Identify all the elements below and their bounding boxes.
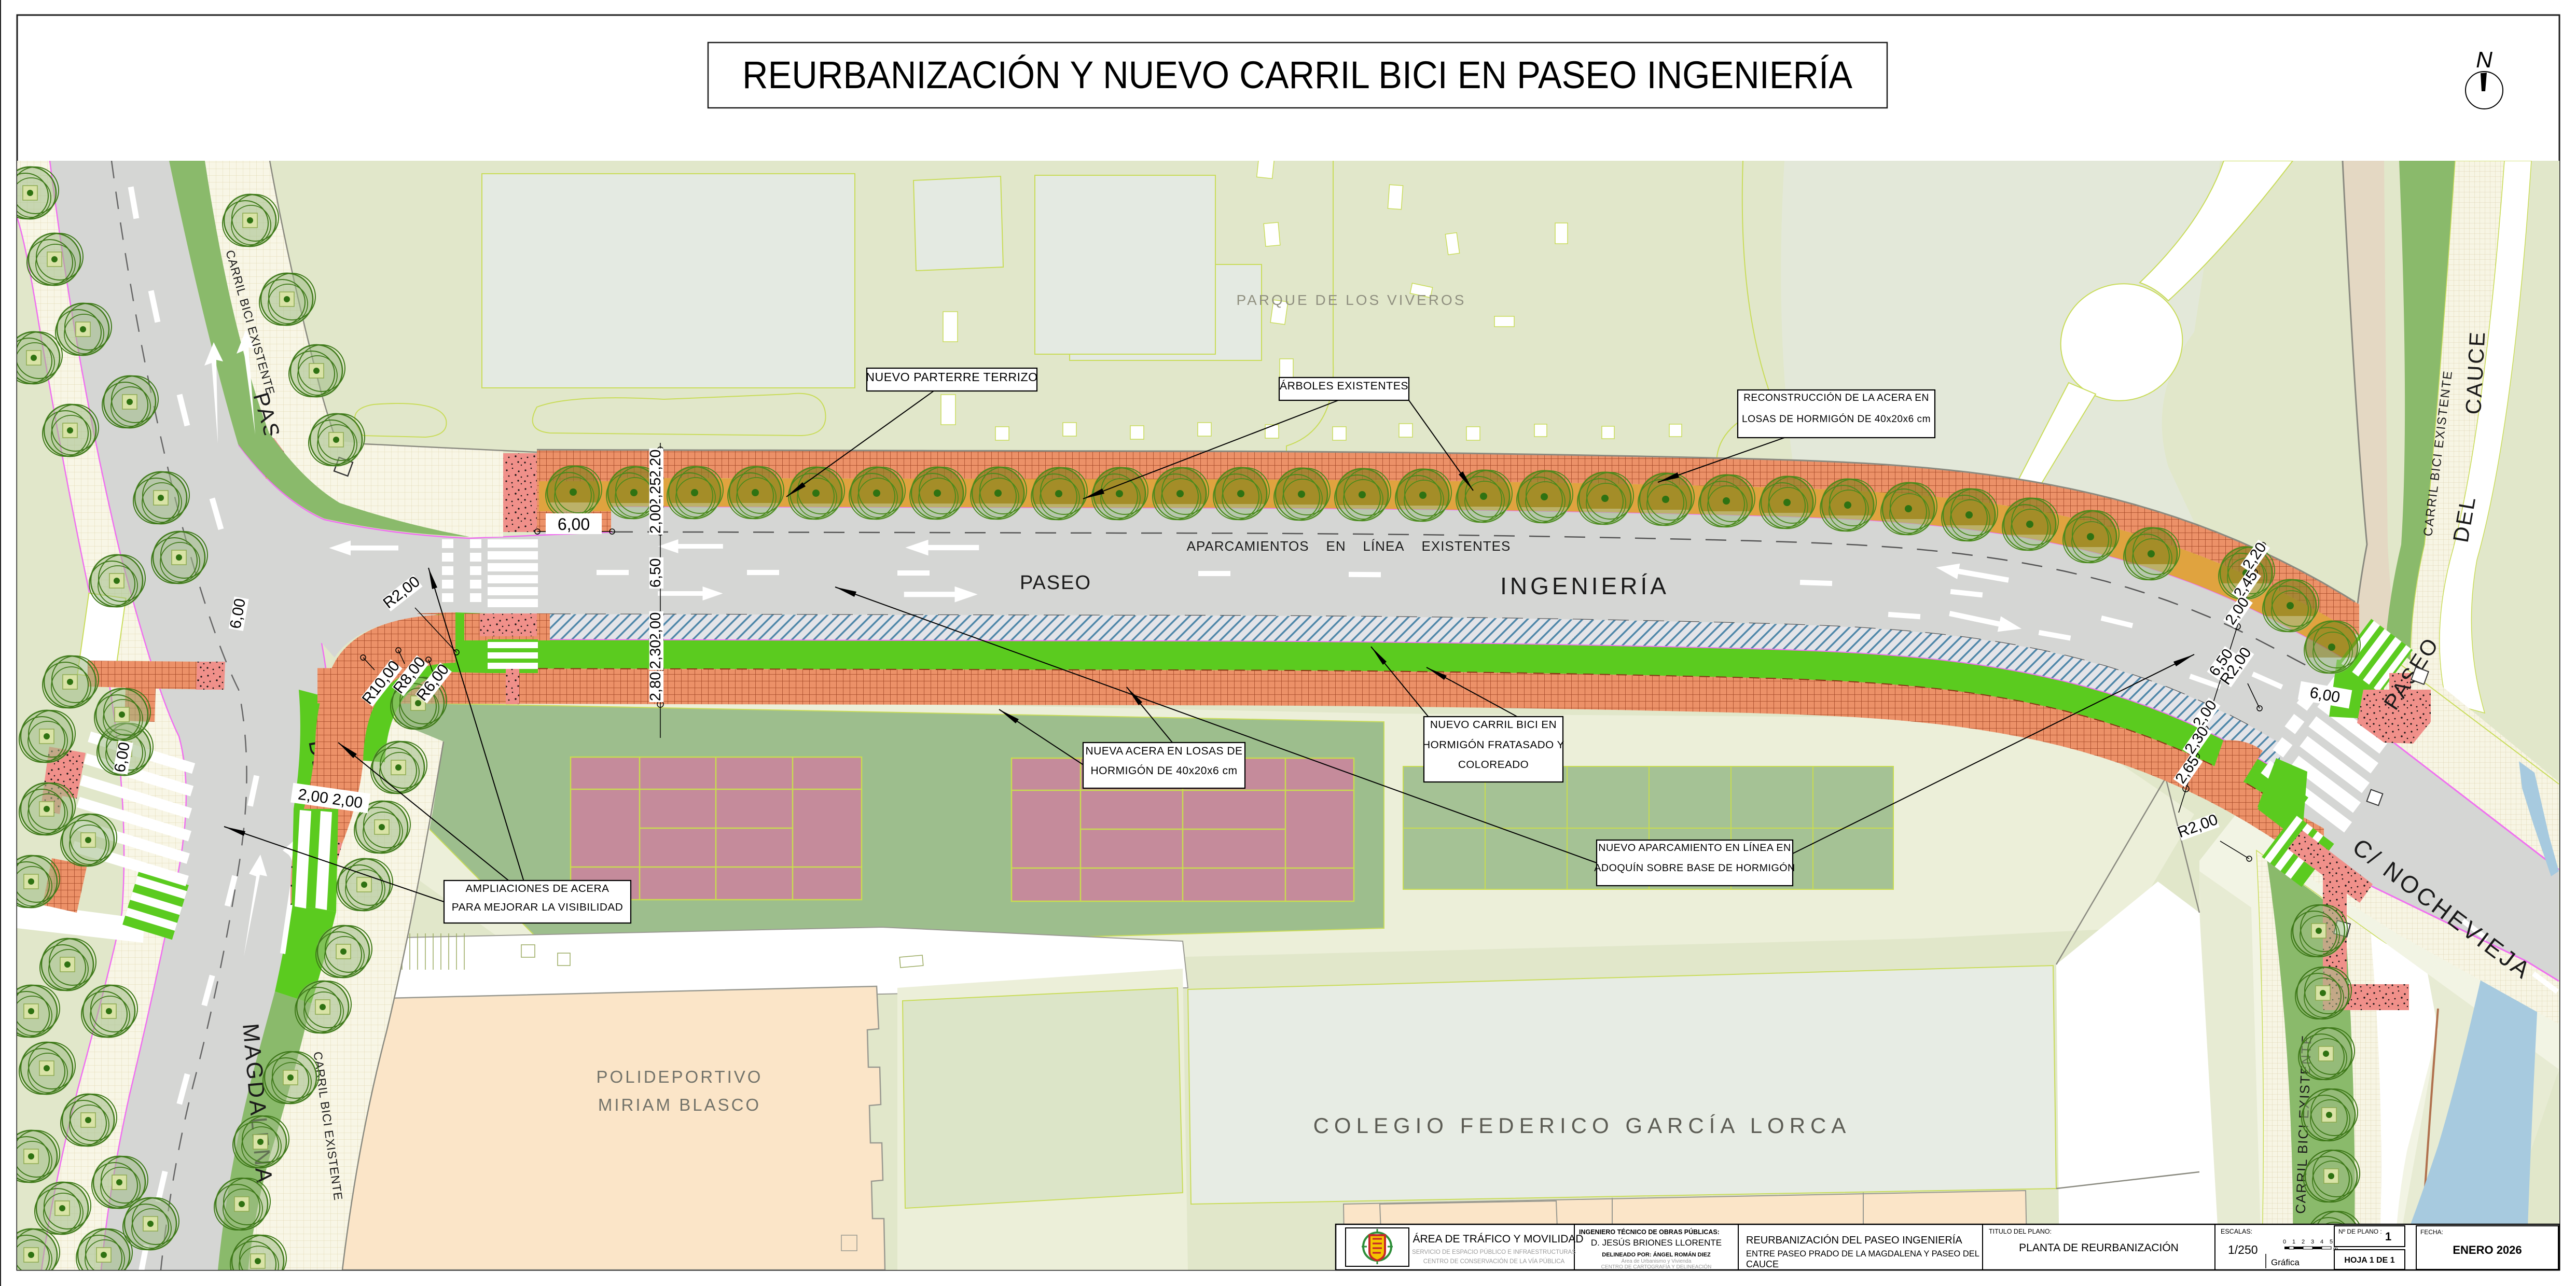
svg-text:FECHA:: FECHA: bbox=[2420, 1228, 2443, 1236]
svg-text:ENTRE PASEO PRADO DE LA MAGDAL: ENTRE PASEO PRADO DE LA MAGDALENA Y PASE… bbox=[1746, 1249, 1979, 1259]
svg-text:SERVICIO DE ESPACIO PÚBLICO E: SERVICIO DE ESPACIO PÚBLICO E INFRAESTRU… bbox=[1412, 1249, 1576, 1255]
svg-text:ADOQUÍN SOBRE BASE DE HORMIGÓN: ADOQUÍN SOBRE BASE DE HORMIGÓN bbox=[1594, 862, 1795, 874]
svg-text:1: 1 bbox=[2385, 1230, 2391, 1243]
svg-text:LOSAS DE HORMIGÓN DE 40x20x6 c: LOSAS DE HORMIGÓN DE 40x20x6 cm bbox=[1742, 413, 1931, 425]
svg-text:0: 0 bbox=[2283, 1239, 2286, 1245]
svg-text:PASEO: PASEO bbox=[1020, 572, 1091, 594]
svg-text:3: 3 bbox=[2311, 1239, 2314, 1245]
svg-text:CAUCE: CAUCE bbox=[2461, 330, 2489, 415]
svg-text:PARQUE DE LOS VIVEROS: PARQUE DE LOS VIVEROS bbox=[1237, 292, 1466, 308]
svg-text:2: 2 bbox=[2302, 1239, 2305, 1245]
svg-text:4: 4 bbox=[2320, 1239, 2323, 1245]
svg-text:CENTRO DE CARTOGRAFÍA Y DELINE: CENTRO DE CARTOGRAFÍA Y DELINEACIÓN bbox=[1601, 1263, 1712, 1270]
svg-text:REURBANIZACIÓN Y NUEVO CARRIL: REURBANIZACIÓN Y NUEVO CARRIL BICI EN PA… bbox=[742, 53, 1853, 96]
svg-text:6,50: 6,50 bbox=[647, 558, 664, 588]
svg-text:PARA MEJORAR LA VISIBILIDAD: PARA MEJORAR LA VISIBILIDAD bbox=[452, 901, 623, 913]
svg-text:DELINEADO POR: ÁNGEL ROMÁN DIE: DELINEADO POR: ÁNGEL ROMÁN DIEZ bbox=[1602, 1251, 1711, 1258]
svg-text:NUEVO CARRIL BICI EN: NUEVO CARRIL BICI EN bbox=[1430, 719, 1557, 731]
svg-text:TITULO DEL PLANO:: TITULO DEL PLANO: bbox=[1989, 1228, 2052, 1235]
svg-text:1: 1 bbox=[2292, 1239, 2295, 1245]
svg-text:POLIDEPORTIVO: POLIDEPORTIVO bbox=[597, 1067, 763, 1086]
svg-text:Gráfica: Gráfica bbox=[2271, 1257, 2300, 1267]
svg-text:NUEVA ACERA EN LOSAS DE: NUEVA ACERA EN LOSAS DE bbox=[1085, 745, 1242, 757]
svg-text:INGENIERÍA: INGENIERÍA bbox=[1500, 572, 1669, 599]
svg-text:2,00: 2,00 bbox=[647, 505, 664, 534]
svg-text:INGENIERO TÉCNICO DE OBRAS PÚB: INGENIERO TÉCNICO DE OBRAS PÚBLICAS: bbox=[1579, 1228, 1720, 1236]
svg-text:2,30: 2,30 bbox=[647, 640, 664, 669]
svg-text:ÁRBOLES EXISTENTES: ÁRBOLES EXISTENTES bbox=[1280, 379, 1408, 392]
svg-text:ESCALAS:: ESCALAS: bbox=[2221, 1228, 2252, 1235]
svg-text:N: N bbox=[2476, 47, 2492, 73]
svg-text:NUEVO PARTERRE TERRIZO: NUEVO PARTERRE TERRIZO bbox=[866, 370, 1037, 384]
svg-text:Área de Urbanismo y Vivienda: Área de Urbanismo y Vivienda bbox=[1622, 1257, 1692, 1264]
svg-text:ENERO 2026: ENERO 2026 bbox=[2453, 1243, 2522, 1256]
svg-text:AMPLIACIONES DE ACERA: AMPLIACIONES DE ACERA bbox=[465, 883, 609, 894]
svg-text:D. JESÚS BRIONES LLORENTE: D. JESÚS BRIONES LLORENTE bbox=[1591, 1238, 1722, 1248]
svg-text:2,00: 2,00 bbox=[647, 612, 664, 641]
svg-text:Nº DE PLANO :: Nº DE PLANO : bbox=[2338, 1228, 2382, 1235]
svg-text:1/250: 1/250 bbox=[2228, 1243, 2258, 1256]
svg-text:6,00: 6,00 bbox=[558, 515, 590, 534]
svg-text:COLEGIO FEDERICO GARCÍA LOR: COLEGIO FEDERICO GARCÍA LORCA bbox=[1313, 1113, 1851, 1138]
svg-text:NUEVO APARCAMIENTO EN LÍNEA EN: NUEVO APARCAMIENTO EN LÍNEA EN bbox=[1598, 842, 1791, 854]
svg-text:CAUCE: CAUCE bbox=[1746, 1259, 1779, 1269]
svg-text:PLANTA DE REURBANIZACIÓN: PLANTA DE REURBANIZACIÓN bbox=[2019, 1242, 2179, 1254]
svg-text:HORMIGÓN DE 40x20x6 cm: HORMIGÓN DE 40x20x6 cm bbox=[1090, 765, 1237, 777]
svg-text:REURBANIZACIÓN DEL PASEO INGEN: REURBANIZACIÓN DEL PASEO INGENIERÍA bbox=[1746, 1234, 1962, 1246]
svg-text:2,80: 2,80 bbox=[647, 672, 664, 701]
svg-text:RECONSTRUCCIÓN DE LA ACERA EN: RECONSTRUCCIÓN DE LA ACERA EN bbox=[1743, 392, 1929, 403]
svg-text:APARCAMIENTOS EN LÍNEA: APARCAMIENTOS EN LÍNEA EXISTENTES bbox=[1187, 538, 1511, 554]
svg-text:2,25: 2,25 bbox=[647, 478, 664, 507]
svg-text:2,20: 2,20 bbox=[647, 450, 664, 479]
svg-text:CENTRO DE CONSERVACIÓN DE LA V: CENTRO DE CONSERVACIÓN DE LA VÍA PÚBLICA bbox=[1423, 1258, 1565, 1265]
svg-text:HORMIGÓN FRATASADO Y: HORMIGÓN FRATASADO Y bbox=[1422, 739, 1564, 751]
svg-text:HOJA 1 DE 1: HOJA 1 DE 1 bbox=[2344, 1256, 2394, 1265]
svg-text:COLOREADO: COLOREADO bbox=[1458, 759, 1529, 771]
svg-text:ÁREA DE TRÁFICO Y MOVILIDAD: ÁREA DE TRÁFICO Y MOVILIDAD bbox=[1412, 1233, 1583, 1245]
svg-text:5: 5 bbox=[2330, 1239, 2333, 1245]
svg-text:MIRIAM BLASCO: MIRIAM BLASCO bbox=[598, 1095, 761, 1114]
